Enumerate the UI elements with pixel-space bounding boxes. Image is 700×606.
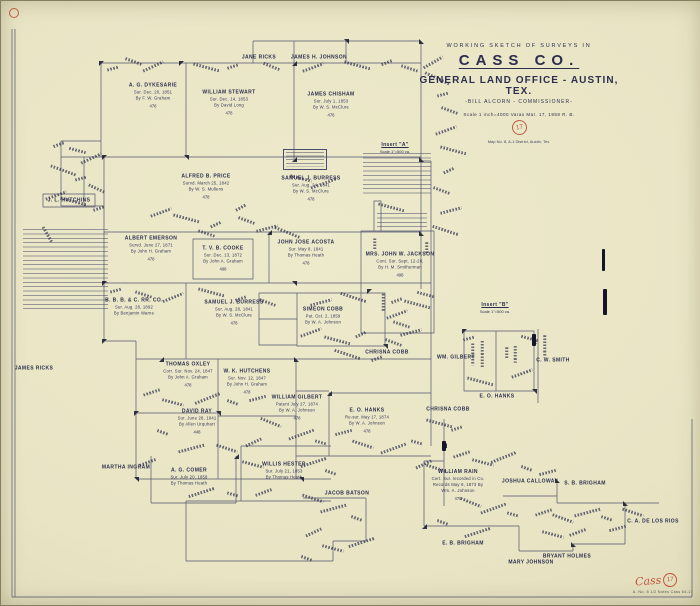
survey-label: E. O. HanksRe-sur. May 17, 1874By W. A. … (345, 408, 389, 435)
survey-label: James ChishamSur. July 1, 1853By W. S. M… (307, 92, 354, 119)
office-line: GENERAL LAND OFFICE - AUSTIN, TEX. (409, 75, 629, 97)
survey-label: Thomas OxleyCorr. Sur. Nov. 24, 1847By J… (163, 362, 212, 389)
survey-label: C. W. Smith (536, 358, 570, 365)
abstract-number: 478 (272, 415, 323, 421)
insert-b-scale: Scale 1"=500 va. (480, 309, 510, 314)
survey-detail: By W. S. McClure (307, 105, 354, 111)
abstract-number: 478 (202, 110, 255, 116)
survey-name: Samuel J. Burress (281, 176, 340, 183)
survey-name: William Gilbert (272, 395, 323, 402)
abstract-number: 478 (129, 103, 177, 109)
survey-label: B. B. B. & C. RR. Co.Sur. Aug. 28, 1892B… (105, 298, 163, 317)
survey-label: James H. Johnson (291, 55, 347, 62)
survey-label: Joshua Calloway (502, 479, 558, 486)
survey-label: J. L. Hutchins (48, 198, 91, 205)
survey-detail: By W. A. Johnson (272, 408, 323, 414)
survey-detail: By David Long (202, 103, 255, 109)
survey-label: Simeon CobbPat. Oct. 2, 1859By W. A. Joh… (303, 307, 343, 326)
survey-label: S. B. Brigham (564, 481, 606, 488)
insert-a-title: Insert "A" Scale 1"=500 va. (380, 142, 410, 154)
survey-label: Mary Johnson (508, 560, 553, 567)
survey-label: Martha Ingram (102, 465, 150, 472)
survey-label: David RaySur. June 28, 1841By Allen Urqu… (178, 409, 217, 436)
survey-detail: Sur. Dec. 13, 1872 (202, 253, 243, 259)
survey-label: Jacob Batson (325, 491, 369, 498)
survey-detail: By Allen Urquhart (178, 422, 217, 428)
sheet-number-stamp: 17 (510, 119, 527, 136)
insert-a-subnote (377, 213, 427, 228)
survey-detail: By W. A. Johnson (303, 320, 343, 326)
survey-name: Jacob Batson (325, 491, 369, 498)
survey-name: C. W. Smith (536, 358, 570, 365)
survey-detail: By John H. Graham (224, 382, 271, 388)
survey-detail: Records May 6, 1873 By (432, 482, 485, 488)
survey-name: Samuel J. Burress (204, 300, 263, 307)
abstract-number: 478 (432, 495, 485, 501)
survey-detail: By W. S. McClure (281, 189, 340, 195)
survey-detail: Sur. June 28, 1841 (178, 416, 217, 422)
survey-detail: By John A. Graham (202, 259, 243, 265)
stamp-sheet-number: 17 (663, 573, 678, 588)
survey-label: William GilbertPatent July 27, 1874By W.… (272, 395, 323, 422)
survey-label: W. K. HutchensSur. Nov. 12, 1847By John … (224, 369, 271, 396)
survey-name: B. B. B. & C. RR. Co. (105, 298, 163, 305)
title-block: WORKING SKETCH OF SURVEYS IN CASS CO. GE… (409, 43, 629, 144)
survey-label: Samuel J. BurressSur. Aug. 24, 1841By W.… (281, 176, 340, 203)
survey-name: James H. Johnson (291, 55, 347, 62)
survey-name: James Chisham (307, 92, 354, 99)
survey-name: Chrisna Cobb (426, 407, 470, 414)
survey-name: E. O. Hanks (480, 394, 515, 401)
survey-name: William Stewart (202, 90, 255, 97)
survey-name: S. B. Brigham (564, 481, 606, 488)
abstract-number: 478 (345, 428, 389, 434)
abstract-number: 478 (181, 194, 230, 200)
boxed-field-note-lines (286, 152, 324, 167)
survey-detail: Sur. Dec. 14, 1853 (202, 97, 255, 103)
survey-name: Simeon Cobb (303, 307, 343, 314)
illegible-note-scribble (506, 347, 509, 359)
survey-detail: By John H. Graham (125, 249, 178, 255)
survey-detail: By W. S. Mullens (181, 187, 230, 193)
survey-detail: Sur. July 1, 1853 (307, 99, 354, 105)
survey-detail: By Thomas Heath (170, 481, 207, 487)
survey-label: Alfred B. PriceSurvd. March 25, 1842By W… (181, 174, 230, 201)
survey-name: Willis Hester (262, 462, 306, 469)
ink-mark (602, 249, 605, 271)
survey-detail: By John A. Graham (163, 375, 212, 381)
survey-label: A. G. DykesarieSur. Dec. 20, 1851By F. W… (129, 83, 177, 110)
survey-detail: By F. W. Graham (129, 96, 177, 102)
abstract-number: 478 (224, 389, 271, 395)
credit-line: Map No. 8, A-1 District, Austin, Tex. (409, 139, 629, 144)
survey-label: James Ricks (15, 366, 54, 373)
survey-label: E. O. Hanks (480, 394, 515, 401)
ink-mark (603, 289, 607, 315)
survey-label: E. B. Brigham (442, 541, 484, 548)
survey-name: A. G. Comer (170, 468, 207, 475)
survey-detail: Pat. Oct. 2, 1859 (303, 314, 343, 320)
abstract-number: 478 (278, 260, 335, 266)
survey-label: Wm. Gilbert (437, 355, 475, 362)
survey-name: E. O. Hanks (345, 408, 389, 415)
illegible-note-scribble (382, 294, 385, 311)
survey-detail: By Benjamin Warne (105, 311, 163, 317)
survey-detail: Cert. Sur. recorded in Co. (432, 476, 485, 482)
survey-label: Samuel J. BurressSur. Aug. 28, 1841By W.… (204, 300, 263, 327)
survey-label: Chrisna Cobb (365, 350, 409, 357)
survey-name: Wm. Gilbert (437, 355, 475, 362)
survey-name: Mary Johnson (508, 560, 553, 567)
survey-label: T. V. B. CookeSur. Dec. 13, 1872By John … (202, 246, 243, 273)
survey-detail: By W. A. Johnson (345, 421, 389, 427)
abstract-number: 498 (202, 266, 243, 272)
marginal-notes (23, 229, 108, 309)
abstract-number: 478 (204, 320, 263, 326)
survey-detail: Sur. Nov. 12, 1847 (224, 376, 271, 382)
illegible-note-scribble (544, 335, 547, 357)
survey-name: Joshua Calloway (502, 479, 558, 486)
scale-date-line: Scale 1 inch=4000 Varas Mar. 17, 1958 R.… (409, 112, 629, 117)
map-sheet: WORKING SKETCH OF SURVEYS IN CASS CO. GE… (0, 0, 700, 606)
survey-label: Chrisna Cobb (426, 407, 470, 414)
red-circle-mark (9, 8, 19, 18)
insert-a-scale: Scale 1"=500 va. (380, 149, 410, 154)
survey-name: T. V. B. Cooke (202, 246, 243, 253)
survey-name: J. L. Hutchins (48, 198, 91, 205)
survey-name: W. K. Hutchens (224, 369, 271, 376)
survey-detail: Survd. March 25, 1842 (181, 181, 230, 187)
survey-label: Jane Ricks (242, 55, 276, 62)
abstract-number: 478 (307, 112, 354, 118)
survey-name: Thomas Oxley (163, 362, 212, 369)
survey-name: David Ray (178, 409, 217, 416)
survey-name: C. A. de los Rios (627, 519, 679, 526)
boxed-field-note (283, 149, 327, 170)
abstract-number: 448 (178, 429, 217, 435)
insert-b-title: Insert "B" Scale 1"=500 va. (480, 302, 510, 314)
file-reference-note: A. No. 8 1/2 Notes Cass 64-17 (633, 590, 693, 594)
survey-label: John Jose AcostaSur. May 8, 1841By Thoma… (278, 240, 335, 267)
survey-detail: Sur. Dec. 20, 1851 (129, 90, 177, 96)
survey-name: Alfred B. Price (181, 174, 230, 181)
survey-label: William RainCert. Sur. recorded in Co.Re… (432, 469, 485, 502)
abstract-number: 498 (366, 272, 435, 278)
survey-label: William StewartSur. Dec. 14, 1853By Davi… (202, 90, 255, 117)
county-title: CASS CO. (409, 52, 629, 69)
survey-name: Mrs. John W. Jackson (366, 252, 435, 259)
survey-detail: Patent July 27, 1874 (272, 402, 323, 408)
insert-a-label: Insert "A" (380, 142, 410, 148)
survey-detail: By W. S. McClure (204, 313, 263, 319)
survey-name: James Ricks (15, 366, 54, 373)
illegible-note-scribble (514, 346, 517, 363)
county-file-stamp: Cass17 (634, 570, 677, 591)
abstract-number: 478 (163, 382, 212, 388)
survey-name: Jane Ricks (242, 55, 276, 62)
survey-name: Chrisna Cobb (365, 350, 409, 357)
survey-label: Mrs. John W. JacksonCont. Sur. Sept. 12-… (366, 252, 435, 279)
survey-name: E. B. Brigham (442, 541, 484, 548)
survey-detail: Sur. July 20, 1858 (170, 475, 207, 481)
survey-detail: By H. M. Smitherman (366, 265, 435, 271)
survey-name: John Jose Acosta (278, 240, 335, 247)
survey-name: Albert Emerson (125, 236, 178, 243)
title-kicker: WORKING SKETCH OF SURVEYS IN (409, 43, 629, 49)
survey-detail: By Thomas Heath (262, 475, 306, 481)
survey-detail: Wm. A. Johnson (432, 488, 485, 494)
survey-name: Martha Ingram (102, 465, 150, 472)
ink-mark (532, 334, 536, 346)
stamp-county-word: Cass (635, 574, 662, 589)
insert-b-label: Insert "B" (480, 302, 510, 308)
survey-name: A. G. Dykesarie (129, 83, 177, 90)
survey-label: C. A. de los Rios (627, 519, 679, 526)
commissioner-line: -BILL ALCORN - COMMISSIONER- (409, 99, 629, 105)
survey-label: Albert EmersonSurvd. June 27, 1871By Joh… (125, 236, 178, 263)
survey-label: Willis HesterSur. July 21, 1853By Thomas… (262, 462, 306, 481)
illegible-note-scribble (374, 238, 377, 250)
illegible-note-scribble (481, 341, 484, 368)
survey-detail: Sur. July 21, 1853 (262, 469, 306, 475)
survey-detail: By Thomas Heath (278, 253, 335, 259)
survey-detail: Corr. Sur. Nov. 24, 1847 (163, 369, 212, 375)
survey-label: A. G. ComerSur. July 20, 1858By Thomas H… (170, 468, 207, 487)
survey-detail: Survd. June 27, 1871 (125, 243, 178, 249)
abstract-number: 478 (281, 196, 340, 202)
survey-name: William Rain (432, 469, 485, 476)
survey-detail: Re-sur. May 17, 1874 (345, 415, 389, 421)
abstract-number: 478 (125, 256, 178, 262)
ink-mark (442, 441, 446, 451)
